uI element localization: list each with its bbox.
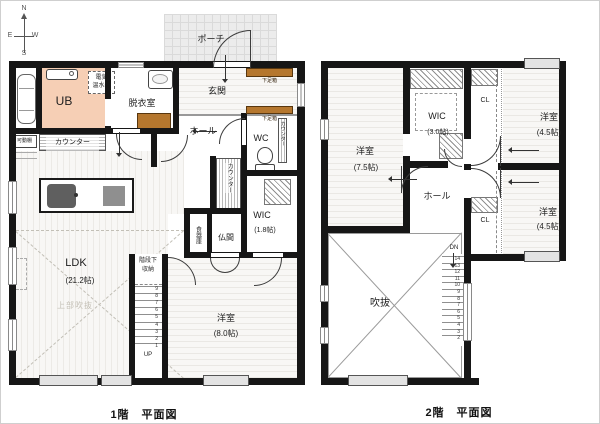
- kitchen-sink-icon: [47, 184, 76, 208]
- stair-tread: 11: [442, 276, 464, 283]
- label-bedroom-1f-size: (8.0帖): [198, 328, 254, 339]
- entry-direction-arrow: [225, 55, 226, 79]
- stair-tread: 5: [442, 315, 464, 322]
- label-understair-1: 階段下: [131, 258, 165, 266]
- caption-floor1: 1階 平面図: [64, 406, 224, 422]
- hall-counter: カウンター: [216, 158, 241, 214]
- arrowhead: [385, 176, 392, 182]
- wall: [184, 208, 247, 214]
- label-understair-2: 収納: [131, 267, 165, 275]
- bath-faucet-icon: [69, 71, 74, 76]
- stair-tread: 1: [135, 343, 162, 350]
- window: [8, 319, 17, 351]
- label-stairs-down: DN: [445, 245, 463, 253]
- stair-tread: 3: [442, 329, 464, 336]
- kitchen-counter-label: カウンター: [46, 135, 99, 151]
- window: [297, 83, 305, 107]
- wall: [498, 163, 566, 170]
- label-hall-2f: ホール: [415, 189, 459, 202]
- compass-axis-vertical: [24, 17, 25, 53]
- door-opening: [113, 129, 140, 133]
- closet-dotted-line: [501, 69, 502, 162]
- window-sill: [203, 375, 249, 386]
- door-direction-arrow: [389, 179, 417, 180]
- label-ldk: LDK: [51, 257, 101, 269]
- wall: [464, 198, 471, 254]
- stove-icon: [103, 186, 125, 206]
- arrowhead: [450, 264, 456, 271]
- shoe-cabinet-label: 下足箱: [262, 78, 277, 84]
- stair-tread: 5: [135, 314, 162, 321]
- stair-tread: 8: [442, 296, 464, 303]
- door-leaf: [250, 30, 251, 68]
- label-wic-2f: WIC: [422, 111, 452, 121]
- hall-counter-label: カウンター: [225, 163, 233, 193]
- stair-tread: 9: [135, 286, 162, 293]
- room-wc: [247, 116, 297, 170]
- wic-hanger-area: [264, 179, 291, 205]
- label-ub: UB: [49, 94, 79, 108]
- label-hall-1f: ホール: [181, 124, 225, 137]
- closet-hanger-area: [471, 197, 498, 213]
- kitchen-counter: カウンター: [39, 134, 106, 151]
- window: [320, 119, 329, 140]
- caption-floor2: 2階 平面図: [379, 404, 539, 420]
- stairs-up-label: UP: [137, 352, 159, 360]
- stair-tread: 4: [135, 322, 162, 329]
- shoe-cabinet-label: 下足箱: [262, 116, 277, 122]
- wc-counter: カウンター: [278, 118, 287, 163]
- compass-n: N: [19, 5, 29, 12]
- label-upper-void: 上部吹抜: [47, 300, 103, 311]
- arrowhead: [505, 147, 512, 153]
- door-opening: [211, 253, 239, 257]
- wall: [464, 164, 471, 170]
- window: [8, 181, 17, 214]
- stair-tread: 9: [442, 289, 464, 296]
- label-porch: ポーチ: [191, 32, 231, 45]
- label-ldk-size: (21.2帖): [52, 275, 108, 286]
- wall: [464, 261, 471, 284]
- wall: [173, 61, 179, 134]
- wall: [297, 61, 305, 385]
- window: [463, 283, 472, 341]
- label-wc: WC: [249, 133, 273, 143]
- wall: [321, 226, 410, 233]
- label-void: 吹抜: [357, 294, 403, 309]
- stair-tread: 10: [442, 282, 464, 289]
- movable-shelf-label: 可動棚: [13, 136, 36, 147]
- car-windshield-line: [19, 88, 34, 89]
- wall: [184, 252, 304, 258]
- door-opening: [105, 99, 111, 126]
- car-icon: [17, 74, 36, 124]
- compass-w: W: [30, 32, 40, 39]
- wall: [36, 67, 42, 134]
- stair-tread: 7: [442, 302, 464, 309]
- wall: [403, 61, 410, 134]
- car-rear-line: [19, 110, 34, 111]
- arrowhead: [505, 179, 512, 185]
- wall: [241, 170, 304, 176]
- window: [118, 62, 144, 68]
- door-direction-arrow: [509, 150, 539, 151]
- label-closet: CL: [477, 97, 493, 104]
- label-wic-2f-size: (3.0帖): [416, 127, 460, 137]
- stair-tread: 4: [442, 322, 464, 329]
- wall: [210, 156, 216, 214]
- wall: [151, 134, 157, 167]
- wic-hanger-area: [410, 69, 463, 89]
- label-bedroom-75: 洋室: [340, 144, 390, 157]
- genkan-step-line: [179, 114, 297, 116]
- window-sill: [348, 375, 408, 386]
- window: [320, 327, 329, 344]
- label-closet: CL: [477, 217, 493, 224]
- label-butsuma: 仏間: [210, 232, 242, 243]
- wall: [9, 128, 111, 134]
- compass-s: S: [19, 50, 29, 57]
- window-sill: [524, 58, 560, 69]
- wall: [9, 61, 305, 68]
- door-direction-arrow: [509, 182, 539, 183]
- toilet-bowl-icon: [257, 147, 273, 164]
- shoe-cabinet: 下足箱: [246, 68, 293, 77]
- door-direction-arrow: [119, 132, 120, 153]
- arrowhead: [116, 153, 122, 160]
- wall: [403, 156, 410, 233]
- stairs-down-arrow: [453, 253, 454, 264]
- label-pantry: 食器庫: [193, 219, 201, 251]
- washer-pad: [137, 113, 171, 129]
- label-bedroom-1f: 洋室: [201, 311, 251, 324]
- window-sill: [39, 375, 98, 386]
- door-leaf: [500, 168, 501, 198]
- window: [8, 247, 17, 285]
- door-leaf: [500, 136, 501, 166]
- closet-hanger-area: [471, 69, 498, 86]
- wall: [464, 61, 471, 139]
- stair-tread: 6: [442, 309, 464, 316]
- window-sill: [101, 375, 132, 386]
- wall: [464, 341, 471, 378]
- stair-storage-boundary: [135, 284, 162, 285]
- label-bedroom-75-size: (7.5帖): [338, 162, 394, 173]
- wall: [184, 208, 190, 258]
- stair-tread: 2: [442, 335, 464, 342]
- shoe-cabinet: 下足箱: [246, 106, 293, 114]
- label-bedroom-45a-size: (4.5帖): [521, 127, 577, 138]
- stair-tread: 7: [135, 300, 162, 307]
- stair-tread: 8: [135, 293, 162, 300]
- compass-e: E: [5, 32, 15, 39]
- sink-basin-icon: [152, 74, 168, 84]
- staircase-1f: 9 8 7 6 5 4 3 2 1: [135, 286, 162, 350]
- window-sill: [524, 251, 560, 262]
- label-wic-1f-size: (1.8帖): [243, 225, 287, 235]
- label-wic-1f: WIC: [247, 210, 277, 220]
- void-boundary-dashed: [16, 230, 184, 231]
- wc-counter-label: カウンター: [279, 121, 286, 146]
- window: [320, 285, 329, 302]
- stair-tread: 6: [135, 307, 162, 314]
- label-bedroom-45b: 洋室: [523, 205, 573, 218]
- floorplan-image: N E W S 電気 温水器 カウンター カウンター 可動棚: [0, 0, 600, 424]
- stair-tread: 3: [135, 329, 162, 336]
- label-genkan: 玄関: [197, 84, 237, 97]
- stair-tread: 2: [135, 336, 162, 343]
- door-opening: [253, 253, 283, 257]
- label-bedroom-45b-size: (4.5帖): [521, 221, 577, 232]
- label-dressing: 脱衣室: [115, 96, 169, 109]
- kitchen-faucet-icon: [74, 193, 78, 197]
- label-bedroom-45a: 洋室: [524, 110, 574, 123]
- wall: [410, 161, 448, 168]
- closet-dotted-line: [501, 171, 502, 253]
